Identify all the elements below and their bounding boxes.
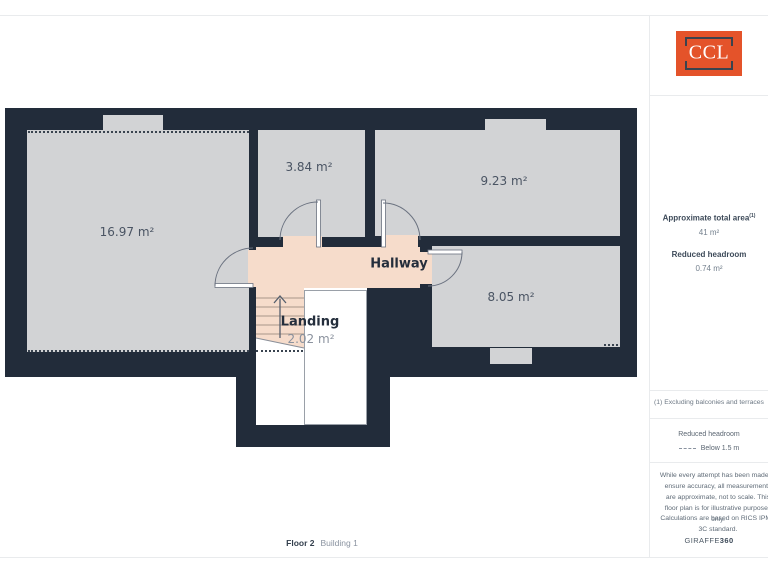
floorplan-page: 16.97 m² 3.84 m² 9.23 m² 8.05 m² Hallway… bbox=[0, 0, 768, 576]
building-label: Building 1 bbox=[321, 538, 358, 548]
headroom-dotted-line-landing bbox=[256, 350, 367, 352]
bottom-border-line bbox=[0, 557, 768, 558]
total-area-label: Approximate total area(1) bbox=[650, 213, 768, 223]
giraffe-name: GIRAFFE bbox=[684, 536, 719, 545]
wall-tab-bottom-right bbox=[490, 348, 532, 364]
door-opening-room-3-84 bbox=[283, 236, 322, 248]
landing-label: Landing bbox=[281, 315, 340, 330]
sidebar-section-line-1 bbox=[650, 95, 768, 96]
total-area-block: Approximate total area(1) 41 m² Reduced … bbox=[650, 213, 768, 273]
legend-item: Below 1.5 m bbox=[650, 445, 768, 452]
wall-tab-top-left bbox=[103, 115, 163, 130]
plan-footer: Floor 2Building 1 bbox=[286, 538, 358, 548]
headroom-dotted-line-bottom bbox=[28, 350, 249, 352]
info-sidebar: CCL Approximate total area(1) 41 m² Redu… bbox=[650, 15, 768, 557]
door-opening-room-9-23 bbox=[385, 235, 418, 248]
reduced-headroom-value: 0.74 m² bbox=[650, 264, 768, 273]
sidebar-section-line-2 bbox=[650, 390, 768, 391]
room-16-97-area-label: 16.97 m² bbox=[100, 225, 155, 239]
room-9-23-area-label: 9.23 m² bbox=[480, 174, 527, 188]
headroom-dotted-line-top bbox=[28, 131, 249, 133]
floor-label: Floor 2 bbox=[286, 538, 314, 548]
headroom-dotted-line-corner bbox=[604, 344, 618, 346]
total-area-value: 41 m² bbox=[650, 228, 768, 237]
ccl-logo: CCL bbox=[676, 31, 742, 76]
hallway-label: Hallway bbox=[370, 257, 427, 272]
giraffe360-brand: GIRAFFE360 bbox=[650, 536, 768, 545]
area-footnote: (1) Excluding balconies and terraces bbox=[650, 399, 768, 406]
wall-tab-top-right bbox=[485, 119, 546, 130]
standard-note: Calculations are based on RICS IPMS 3C s… bbox=[650, 514, 768, 536]
reduced-headroom-dash-swatch bbox=[679, 448, 696, 449]
room-3-84 bbox=[258, 130, 365, 237]
total-area-footnote-marker: (1) bbox=[749, 213, 755, 219]
legend-item-text: Below 1.5 m bbox=[701, 445, 740, 452]
door-opening-room-16-97 bbox=[248, 250, 258, 287]
room-16-97 bbox=[27, 130, 249, 352]
landing-area-label: 2.02 m² bbox=[287, 332, 334, 346]
logo-text: CCL bbox=[676, 41, 742, 64]
room-3-84-area-label: 3.84 m² bbox=[285, 160, 332, 174]
giraffe-suffix: 360 bbox=[720, 536, 734, 545]
sidebar-section-line-4 bbox=[650, 462, 768, 463]
room-8-05-area-label: 8.05 m² bbox=[487, 290, 534, 304]
reduced-headroom-label: Reduced headroom bbox=[650, 250, 768, 259]
sidebar-section-line-3 bbox=[650, 418, 768, 419]
legend-title: Reduced headroom bbox=[650, 431, 768, 438]
